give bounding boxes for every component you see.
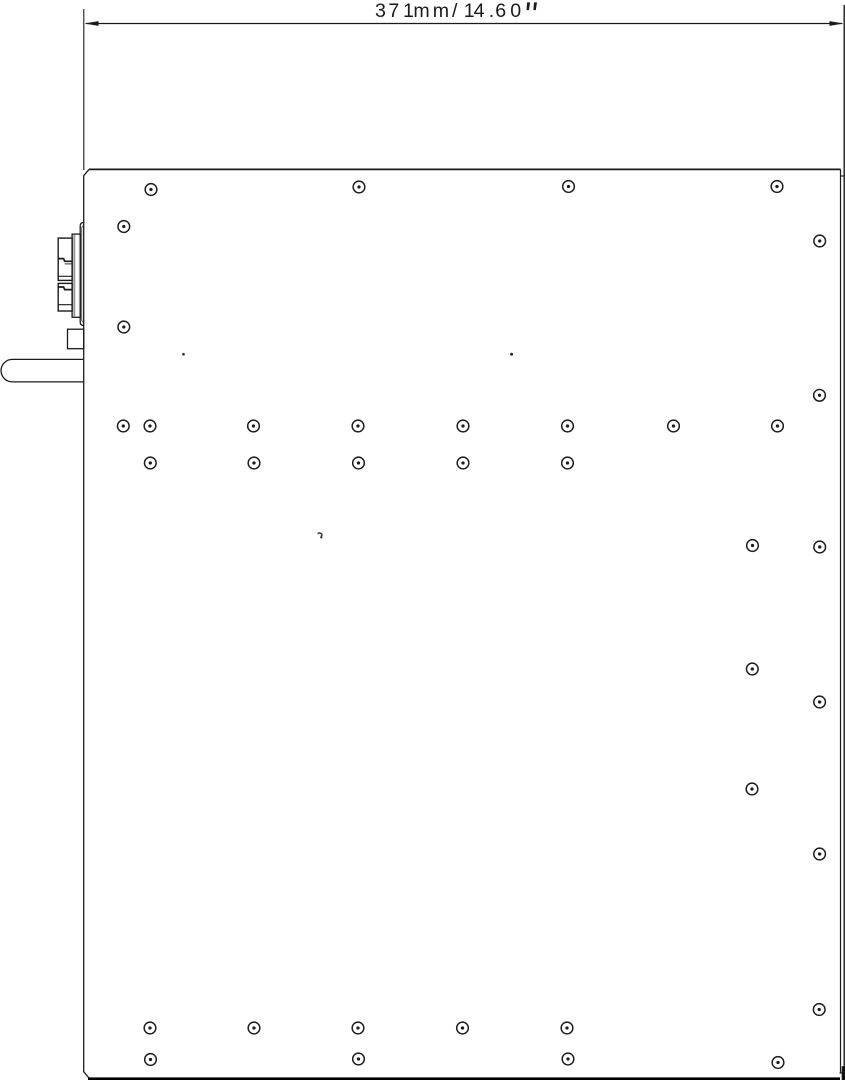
svg-text:371mm/14.60: 371mm/14.60 xyxy=(375,0,521,22)
